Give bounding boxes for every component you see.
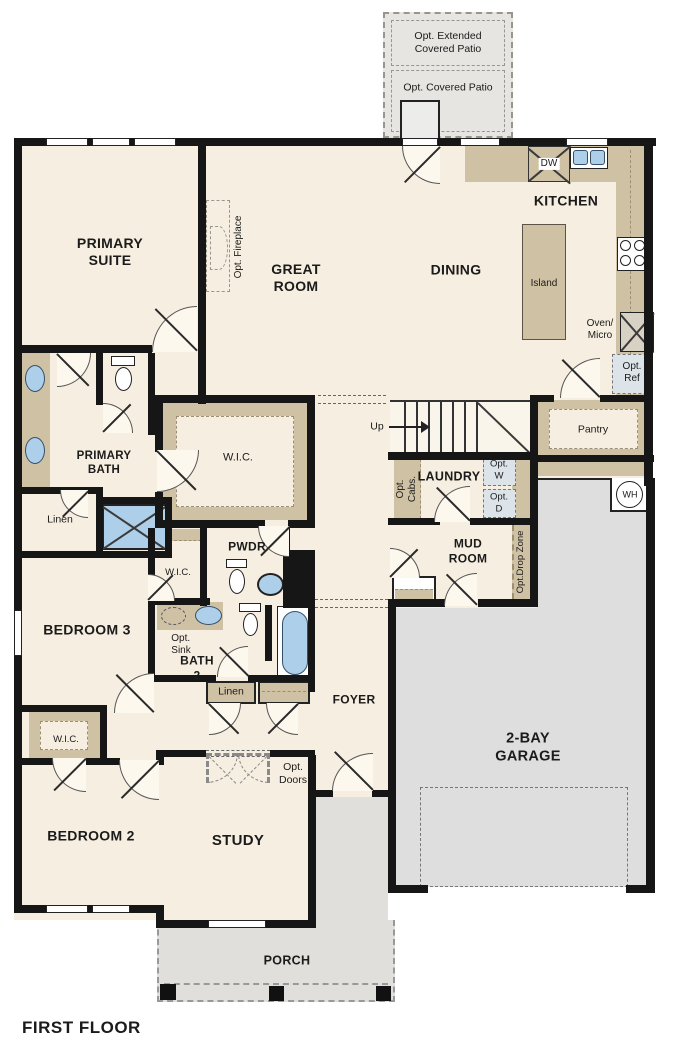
opt-fireplace-hearth — [210, 226, 228, 270]
wall — [14, 905, 164, 913]
wall — [22, 705, 107, 712]
mud-room-door-arc — [390, 548, 420, 578]
up-arrow-line — [389, 426, 421, 428]
water-heater-label: WH — [623, 490, 638, 501]
window — [134, 138, 176, 146]
wall — [388, 518, 440, 525]
up-label: Up — [370, 421, 383, 434]
wall — [248, 675, 310, 682]
hall-closet-door-arc — [266, 703, 298, 735]
porch-post — [376, 986, 391, 1001]
wall — [646, 478, 655, 893]
window — [92, 905, 130, 913]
bedroom3-door-arc — [114, 673, 154, 713]
laundry-label: LAUNDRY — [418, 469, 481, 484]
hall-linen-label: Linen — [218, 686, 244, 699]
wall — [14, 138, 22, 913]
window — [566, 138, 608, 146]
wic-label: W.I.C. — [165, 567, 191, 579]
bath2-door-arc — [217, 646, 248, 677]
drop-zone-label: Opt.Drop Zone — [515, 531, 527, 594]
wall — [14, 345, 152, 353]
wall — [100, 705, 107, 765]
primary-toilet-door-arc — [103, 403, 133, 433]
wall-chase — [283, 550, 315, 608]
opt-doors-label: Opt. Doors — [279, 761, 307, 787]
wall — [538, 395, 554, 402]
pantry-door-arc — [560, 358, 600, 398]
patio-door-arc — [402, 146, 440, 184]
porch-post — [160, 984, 176, 1000]
wall — [388, 885, 428, 893]
pwdr-toilet-tank — [226, 559, 247, 568]
study-label: STUDY — [212, 832, 264, 850]
floor-plan: Opt. Extended Covered Patio Opt. Covered… — [0, 0, 673, 1055]
primary-wic-door-arc — [157, 450, 199, 492]
drop-zone-counter — [537, 462, 650, 476]
wall — [626, 885, 655, 893]
primary-bath-door-arc — [57, 353, 91, 387]
laundry-door-arc — [434, 486, 470, 522]
bath2-label: BATH 2 — [180, 653, 214, 682]
foyer-label: FOYER — [333, 693, 376, 708]
dishwasher-label: DW — [539, 158, 560, 170]
wall — [155, 520, 265, 528]
burner — [620, 240, 631, 251]
opt-cabs-label: Opt. Cabs. — [395, 476, 419, 502]
island-label: Island — [531, 278, 558, 290]
wall — [644, 138, 653, 486]
window — [14, 610, 22, 656]
bathtub-basin — [282, 611, 308, 675]
extended-patio-label: Opt. Extended Covered Patio — [414, 30, 481, 56]
opt-fireplace-label: Opt. Fireplace — [233, 216, 245, 279]
bath2-sink — [195, 606, 222, 625]
sink-basin — [590, 150, 605, 165]
opt-study-door-arc — [238, 753, 270, 783]
primary-sink — [25, 437, 45, 464]
wall — [313, 790, 333, 797]
primary-linen-label: Linen — [47, 514, 73, 527]
porch-inner-dashed-line — [164, 983, 388, 985]
wall — [308, 755, 316, 928]
covered-patio-label: Opt. Covered Patio — [403, 82, 492, 95]
wall — [265, 605, 272, 661]
window — [92, 138, 130, 146]
wall — [148, 600, 155, 677]
wall — [155, 395, 163, 452]
wall — [14, 551, 155, 558]
great-room-label: GREAT ROOM — [271, 261, 320, 295]
hall-closet-door-arc — [209, 703, 241, 735]
stair-tread — [440, 402, 442, 452]
wall — [470, 518, 538, 525]
burner — [620, 255, 631, 266]
porch-floor — [315, 797, 388, 925]
bath2-toilet-bowl — [243, 613, 258, 636]
wall — [268, 750, 315, 757]
wall — [478, 599, 538, 607]
wall — [160, 750, 208, 757]
garage-label: 2-BAY GARAGE — [495, 730, 560, 765]
bedroom2-wic-label: W.I.C. — [53, 734, 79, 746]
window — [46, 138, 88, 146]
up-arrow-head — [421, 421, 430, 433]
window — [460, 138, 500, 146]
wall — [148, 353, 155, 435]
wall — [530, 395, 538, 607]
pwdr-label: PWDR — [228, 540, 266, 555]
primary-suite-label: PRIMARY SUITE — [77, 235, 143, 269]
mud-room-label: MUD ROOM — [449, 536, 488, 565]
wall — [307, 395, 315, 528]
porch-post — [269, 986, 284, 1001]
shelf-dashed-line — [262, 691, 306, 692]
patio-landing — [400, 100, 440, 140]
oven-micro-label: Oven/ Micro — [587, 318, 614, 342]
mud-closet-bench — [395, 589, 433, 599]
patio-door-panel — [402, 138, 438, 146]
hall-shelf-closet — [258, 681, 310, 704]
bedroom2-label: BEDROOM 2 — [47, 827, 135, 844]
floor-title: FIRST FLOOR — [22, 1018, 141, 1038]
bath2-opt-sink — [161, 607, 186, 625]
stair-tread — [452, 402, 454, 452]
bedroom3-label: BEDROOM 3 — [43, 621, 131, 638]
wall — [96, 353, 103, 405]
sink-basin — [573, 150, 588, 165]
pwdr-sink — [257, 573, 284, 596]
garage-entry-door-arc — [444, 573, 477, 606]
window — [208, 920, 266, 928]
primary-suite-door-arc — [152, 306, 197, 352]
primary-toilet-tank — [111, 356, 135, 366]
opt-ref-label: Opt. Ref — [623, 361, 642, 385]
kitchen-label: KITCHEN — [534, 192, 598, 209]
stair-tread — [476, 402, 478, 452]
pantry-label: Pantry — [578, 424, 608, 437]
primary-bath-label: PRIMARY BATH — [77, 449, 132, 477]
dining-label: DINING — [431, 261, 482, 278]
wall — [288, 520, 315, 528]
bedroom2-wic-door-arc — [52, 758, 86, 792]
primary-sink — [25, 365, 45, 392]
wall — [388, 599, 445, 607]
bath2-toilet-tank — [239, 603, 261, 612]
primary-wic-label: W.I.C. — [223, 451, 253, 464]
porch-label: PORCH — [264, 953, 311, 968]
cased-opening — [315, 599, 388, 608]
wall — [155, 395, 315, 403]
primary-toilet-bowl — [115, 367, 132, 391]
wall — [530, 455, 654, 462]
garage-apron-outline — [420, 787, 628, 887]
wall — [388, 599, 396, 893]
pwdr-toilet-bowl — [229, 569, 245, 594]
stair-tread — [464, 402, 466, 452]
wall — [200, 528, 207, 606]
wall — [198, 138, 206, 404]
bedroom2-door-arc — [119, 760, 159, 800]
window — [46, 905, 88, 913]
stair-top-edge — [390, 400, 537, 402]
wall — [600, 395, 646, 402]
wall — [388, 452, 538, 460]
cased-opening — [318, 395, 386, 404]
opt-washer-label: Opt. W — [490, 458, 508, 481]
opt-dryer-label: Opt. D — [490, 491, 508, 514]
